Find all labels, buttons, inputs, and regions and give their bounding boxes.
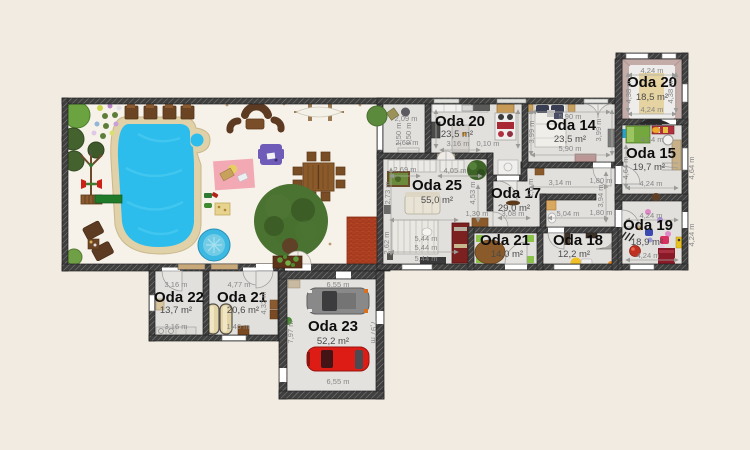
svg-text:5,90 m: 5,90 m xyxy=(559,112,582,121)
svg-text:2,62 m: 2,62 m xyxy=(382,232,391,255)
svg-text:Oda 21: Oda 21 xyxy=(480,232,530,249)
svg-text:2,73 m: 2,73 m xyxy=(383,182,392,205)
svg-text:13,7 m²: 13,7 m² xyxy=(160,305,192,316)
svg-text:6,55 m: 6,55 m xyxy=(327,280,350,289)
svg-text:7,97 m: 7,97 m xyxy=(369,321,378,344)
svg-text:5,90 m: 5,90 m xyxy=(559,144,582,153)
svg-text:3,16 m: 3,16 m xyxy=(165,322,188,331)
svg-text:20,6 m²: 20,6 m² xyxy=(227,305,259,316)
svg-text:4,24 m: 4,24 m xyxy=(640,179,663,188)
svg-text:12,2 m²: 12,2 m² xyxy=(558,249,590,260)
svg-text:6,55 m: 6,55 m xyxy=(327,377,350,386)
svg-text:Oda 19: Oda 19 xyxy=(623,217,673,234)
svg-text:4,24 m: 4,24 m xyxy=(641,66,664,75)
svg-text:4,38 m: 4,38 m xyxy=(666,81,675,104)
svg-text:3,99 m: 3,99 m xyxy=(594,119,603,142)
svg-text:55,0 m²: 55,0 m² xyxy=(421,195,453,206)
svg-text:14,0 m²: 14,0 m² xyxy=(491,249,523,260)
svg-text:0,10 m: 0,10 m xyxy=(477,139,500,148)
svg-text:Oda 20: Oda 20 xyxy=(435,113,485,130)
svg-text:4,32 m: 4,32 m xyxy=(259,292,268,315)
svg-text:19,7 m²: 19,7 m² xyxy=(633,162,665,173)
svg-text:Oda 22: Oda 22 xyxy=(154,289,204,306)
svg-text:5,44 m: 5,44 m xyxy=(415,234,438,243)
svg-text:4,24 m: 4,24 m xyxy=(641,105,664,114)
svg-text:1,46 m: 1,46 m xyxy=(227,322,250,331)
svg-text:4,05 m: 4,05 m xyxy=(444,166,467,175)
svg-text:3,14 m: 3,14 m xyxy=(549,178,572,187)
svg-text:1,50 m: 1,50 m xyxy=(404,123,413,146)
svg-text:2,0 m: 2,0 m xyxy=(526,179,535,198)
svg-text:4,64 m: 4,64 m xyxy=(621,157,630,180)
svg-text:Oda 18: Oda 18 xyxy=(553,232,603,249)
svg-text:Oda 25: Oda 25 xyxy=(412,177,462,194)
svg-text:52,2 m²: 52,2 m² xyxy=(317,336,349,347)
svg-text:4,38 m: 4,38 m xyxy=(624,81,633,104)
svg-text:1,80 m: 1,80 m xyxy=(590,176,613,185)
svg-text:3,16 m: 3,16 m xyxy=(447,139,470,148)
svg-text:4,24 m: 4,24 m xyxy=(687,224,696,247)
svg-text:3,99 m: 3,99 m xyxy=(527,121,536,144)
svg-text:3,08 m: 3,08 m xyxy=(502,209,525,218)
svg-text:2,09 m: 2,09 m xyxy=(395,114,418,123)
svg-text:3,16 m: 3,16 m xyxy=(165,280,188,289)
svg-text:2,69 m: 2,69 m xyxy=(394,165,417,174)
svg-text:4,24 m: 4,24 m xyxy=(637,251,660,260)
svg-text:1,30 m: 1,30 m xyxy=(466,209,489,218)
svg-text:4,77 m: 4,77 m xyxy=(228,280,251,289)
svg-text:4,64 m: 4,64 m xyxy=(687,157,696,180)
svg-text:3,94 m: 3,94 m xyxy=(596,185,605,208)
svg-text:7,97 m: 7,97 m xyxy=(286,321,295,344)
svg-text:1,50 m: 1,50 m xyxy=(394,123,403,146)
svg-text:4,24 m: 4,24 m xyxy=(641,135,664,144)
svg-text:4,53 m: 4,53 m xyxy=(468,182,477,205)
svg-text:5,44 m: 5,44 m xyxy=(415,254,438,263)
svg-text:Oda 23: Oda 23 xyxy=(308,318,358,335)
svg-text:18,5 m²: 18,5 m² xyxy=(636,92,668,103)
svg-text:5,04 m: 5,04 m xyxy=(557,209,580,218)
svg-text:Oda 15: Oda 15 xyxy=(626,145,676,162)
svg-text:5,44 m: 5,44 m xyxy=(415,243,438,252)
svg-text:18,9 m²: 18,9 m² xyxy=(631,237,663,248)
svg-text:1,80 m: 1,80 m xyxy=(590,208,613,217)
